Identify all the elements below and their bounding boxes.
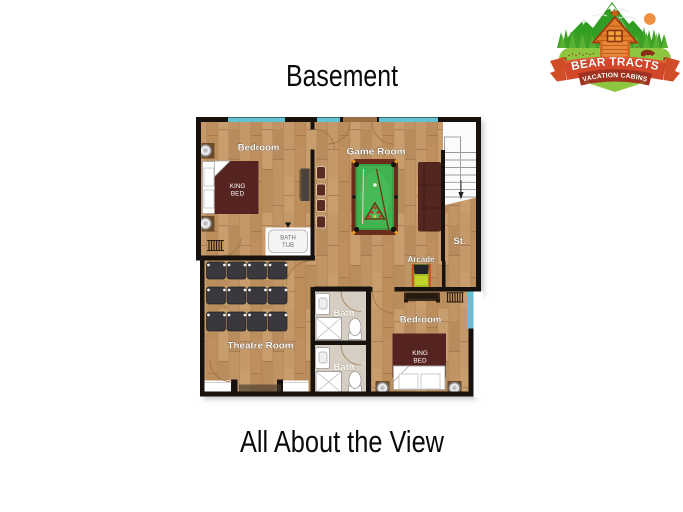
svg-text:Bath: Bath [333,308,354,319]
svg-text:KING: KING [412,350,428,357]
svg-text:St.: St. [453,236,465,247]
svg-text:BED: BED [413,358,427,365]
svg-text:BATH: BATH [280,236,296,242]
svg-text:BED: BED [231,191,245,198]
svg-text:Theatre Room: Theatre Room [228,341,294,351]
svg-text:All About the View: All About the View [240,424,444,459]
svg-text:Bedroom: Bedroom [238,143,280,153]
svg-text:Arcade: Arcade [408,255,436,264]
svg-text:Basement: Basement [286,58,398,93]
svg-text:TUB: TUB [282,243,294,249]
svg-text:Bath: Bath [333,362,354,373]
svg-text:KING: KING [230,183,246,190]
svg-text:Bedroom: Bedroom [400,315,442,325]
svg-text:Game Room: Game Room [347,147,406,157]
